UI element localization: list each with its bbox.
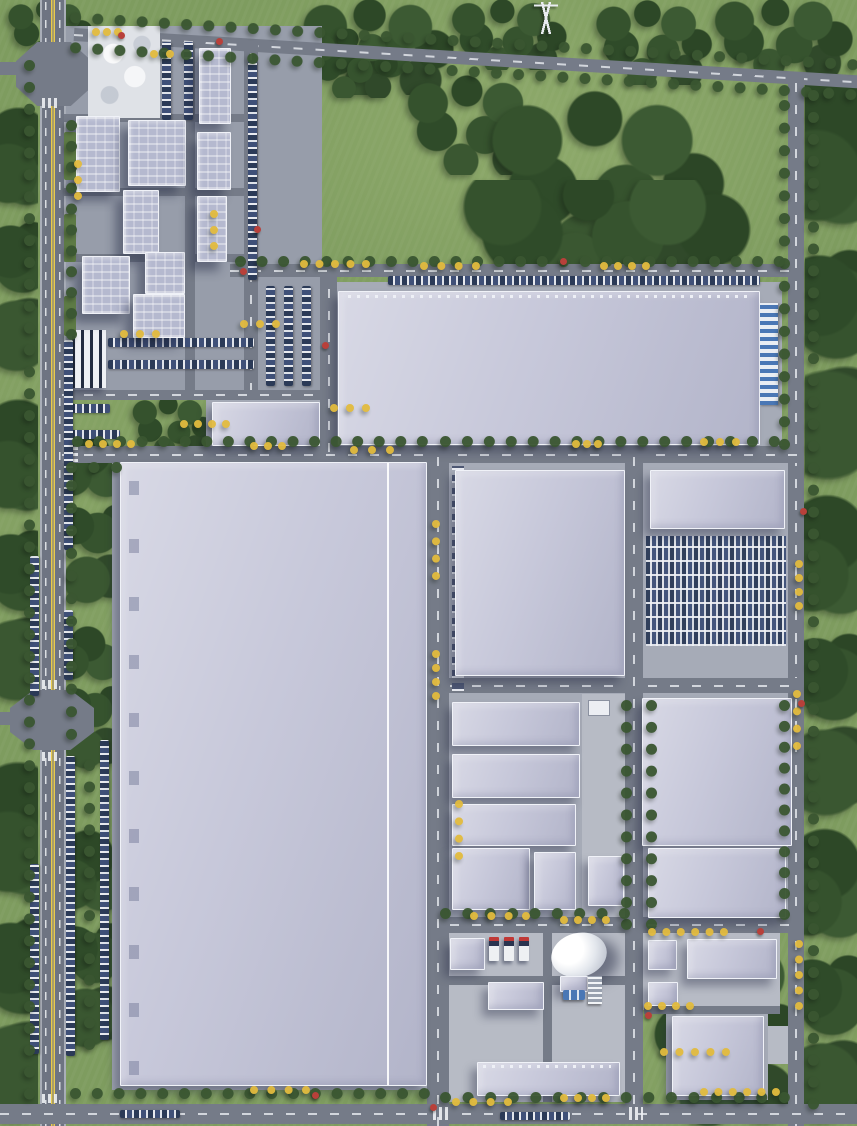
yellow-trees: [560, 1094, 610, 1102]
yellow-trees: [420, 262, 480, 270]
yellow-trees: [85, 440, 135, 448]
parked-cars: [302, 286, 311, 386]
main-road-west: [40, 0, 66, 1126]
blue-pump-skids: [563, 990, 585, 1000]
yellow-trees: [660, 1048, 730, 1056]
yellow-trees: [432, 520, 440, 580]
yellow-trees: [700, 438, 740, 446]
yellow-trees: [648, 928, 728, 936]
street-parking: [66, 756, 75, 1056]
campus-south-street: [62, 390, 324, 400]
crosswalk: [629, 1107, 643, 1120]
street-trees: [66, 120, 77, 340]
red-tree: [430, 1104, 437, 1111]
moving-cars: [120, 1110, 180, 1118]
red-tree: [645, 1012, 652, 1019]
heat-exchanger-rack: [588, 976, 602, 1004]
red-tree: [216, 38, 223, 45]
crosswalk: [42, 98, 60, 108]
office-building: [76, 116, 120, 192]
yellow-trees: [432, 650, 440, 700]
shed: [648, 940, 677, 970]
east-low-hall: [650, 470, 785, 529]
truck-bay-truck: [504, 937, 514, 961]
power-pylon: [534, 2, 558, 34]
junction-plaza-mid: [10, 690, 94, 750]
yellow-trees: [74, 160, 82, 200]
yellow-trees: [560, 916, 610, 924]
street-trees: [779, 100, 790, 450]
yellow-trees: [470, 912, 530, 920]
internal-road-north: [320, 270, 337, 452]
yellow-trees: [455, 800, 463, 860]
yellow-trees: [120, 330, 160, 338]
staff-parking-lot: [646, 536, 786, 646]
red-tree: [757, 928, 764, 935]
yellow-trees: [795, 560, 803, 610]
red-tree: [118, 32, 125, 39]
red-tree: [560, 258, 567, 265]
roadside-parking-row: [388, 276, 760, 285]
crosswalk: [42, 680, 60, 689]
yellow-trees: [350, 446, 394, 454]
parked-cars: [284, 286, 293, 386]
shed: [687, 939, 777, 979]
yellow-trees: [793, 690, 801, 750]
workshop: [455, 470, 625, 676]
workshop-small: [588, 856, 624, 906]
parked-cars: [266, 286, 275, 386]
mega-warehouse: [120, 462, 427, 1086]
utility-building: [488, 982, 544, 1010]
street-trees: [84, 760, 95, 1050]
parked-cars: [108, 338, 254, 347]
red-tree: [322, 342, 329, 349]
workshop: [452, 848, 530, 910]
truck-bay-truck: [519, 937, 529, 961]
yellow-trees: [330, 404, 370, 412]
street-trees: [621, 700, 632, 930]
crosswalk: [42, 1094, 60, 1103]
moving-cars: [500, 1112, 570, 1120]
red-tree: [798, 700, 805, 707]
entrance-plaza: [88, 26, 160, 118]
rooftop-units: [129, 475, 139, 1075]
street-trees: [66, 480, 77, 740]
parking-canopy: [72, 330, 106, 388]
yellow-trees: [572, 440, 602, 448]
workshop: [452, 804, 576, 846]
utility-building: [450, 938, 485, 970]
parked-cars: [70, 404, 110, 413]
red-tree: [800, 508, 807, 515]
office-building: [197, 132, 231, 190]
red-tree: [240, 268, 247, 275]
roof-ridge: [387, 463, 389, 1085]
east-warehouse-upper: [642, 698, 792, 846]
red-tree: [254, 226, 261, 233]
parked-cars: [108, 360, 254, 369]
street-parking: [248, 60, 257, 280]
workshop: [452, 702, 580, 746]
street-trees: [779, 700, 790, 920]
yellow-trees: [250, 1086, 310, 1094]
yellow-trees: [150, 50, 174, 58]
office-building: [82, 256, 130, 314]
truck-bay-truck: [489, 937, 499, 961]
yellow-trees: [210, 210, 218, 250]
aerial-masterplan-scene: [0, 0, 857, 1126]
office-building: [145, 252, 185, 294]
street-trees: [646, 700, 657, 930]
street-trees: [24, 60, 35, 1100]
east-warehouse-lower: [648, 848, 786, 918]
crosswalk: [42, 752, 60, 761]
office-building: [123, 190, 159, 254]
side-road-stub: [0, 712, 14, 725]
shed: [672, 1016, 764, 1096]
workshop: [534, 852, 576, 910]
dock-doors: [483, 1065, 611, 1068]
workshop: [452, 754, 580, 798]
yellow-trees: [240, 320, 280, 328]
red-tree: [312, 1092, 319, 1099]
tree-strip-east: [795, 815, 857, 1126]
office-building: [128, 120, 186, 186]
yellow-trees: [795, 940, 803, 1010]
yellow-trees: [300, 260, 370, 268]
street-trees: [808, 90, 819, 1110]
street-trees: [66, 462, 122, 473]
yellow-trees: [250, 442, 286, 450]
side-road-stub: [0, 62, 20, 75]
loading-docks-blue: [760, 303, 778, 405]
pavement-marking: [588, 700, 610, 716]
north-warehouse: [338, 291, 760, 445]
yellow-trees: [644, 1002, 694, 1010]
dock-doors: [348, 295, 748, 298]
yellow-trees: [452, 1098, 512, 1106]
street-parking: [100, 740, 109, 1040]
yellow-trees: [700, 1088, 780, 1096]
yellow-trees: [600, 262, 650, 270]
yellow-trees: [180, 420, 230, 428]
cross-road-2: [428, 678, 802, 693]
